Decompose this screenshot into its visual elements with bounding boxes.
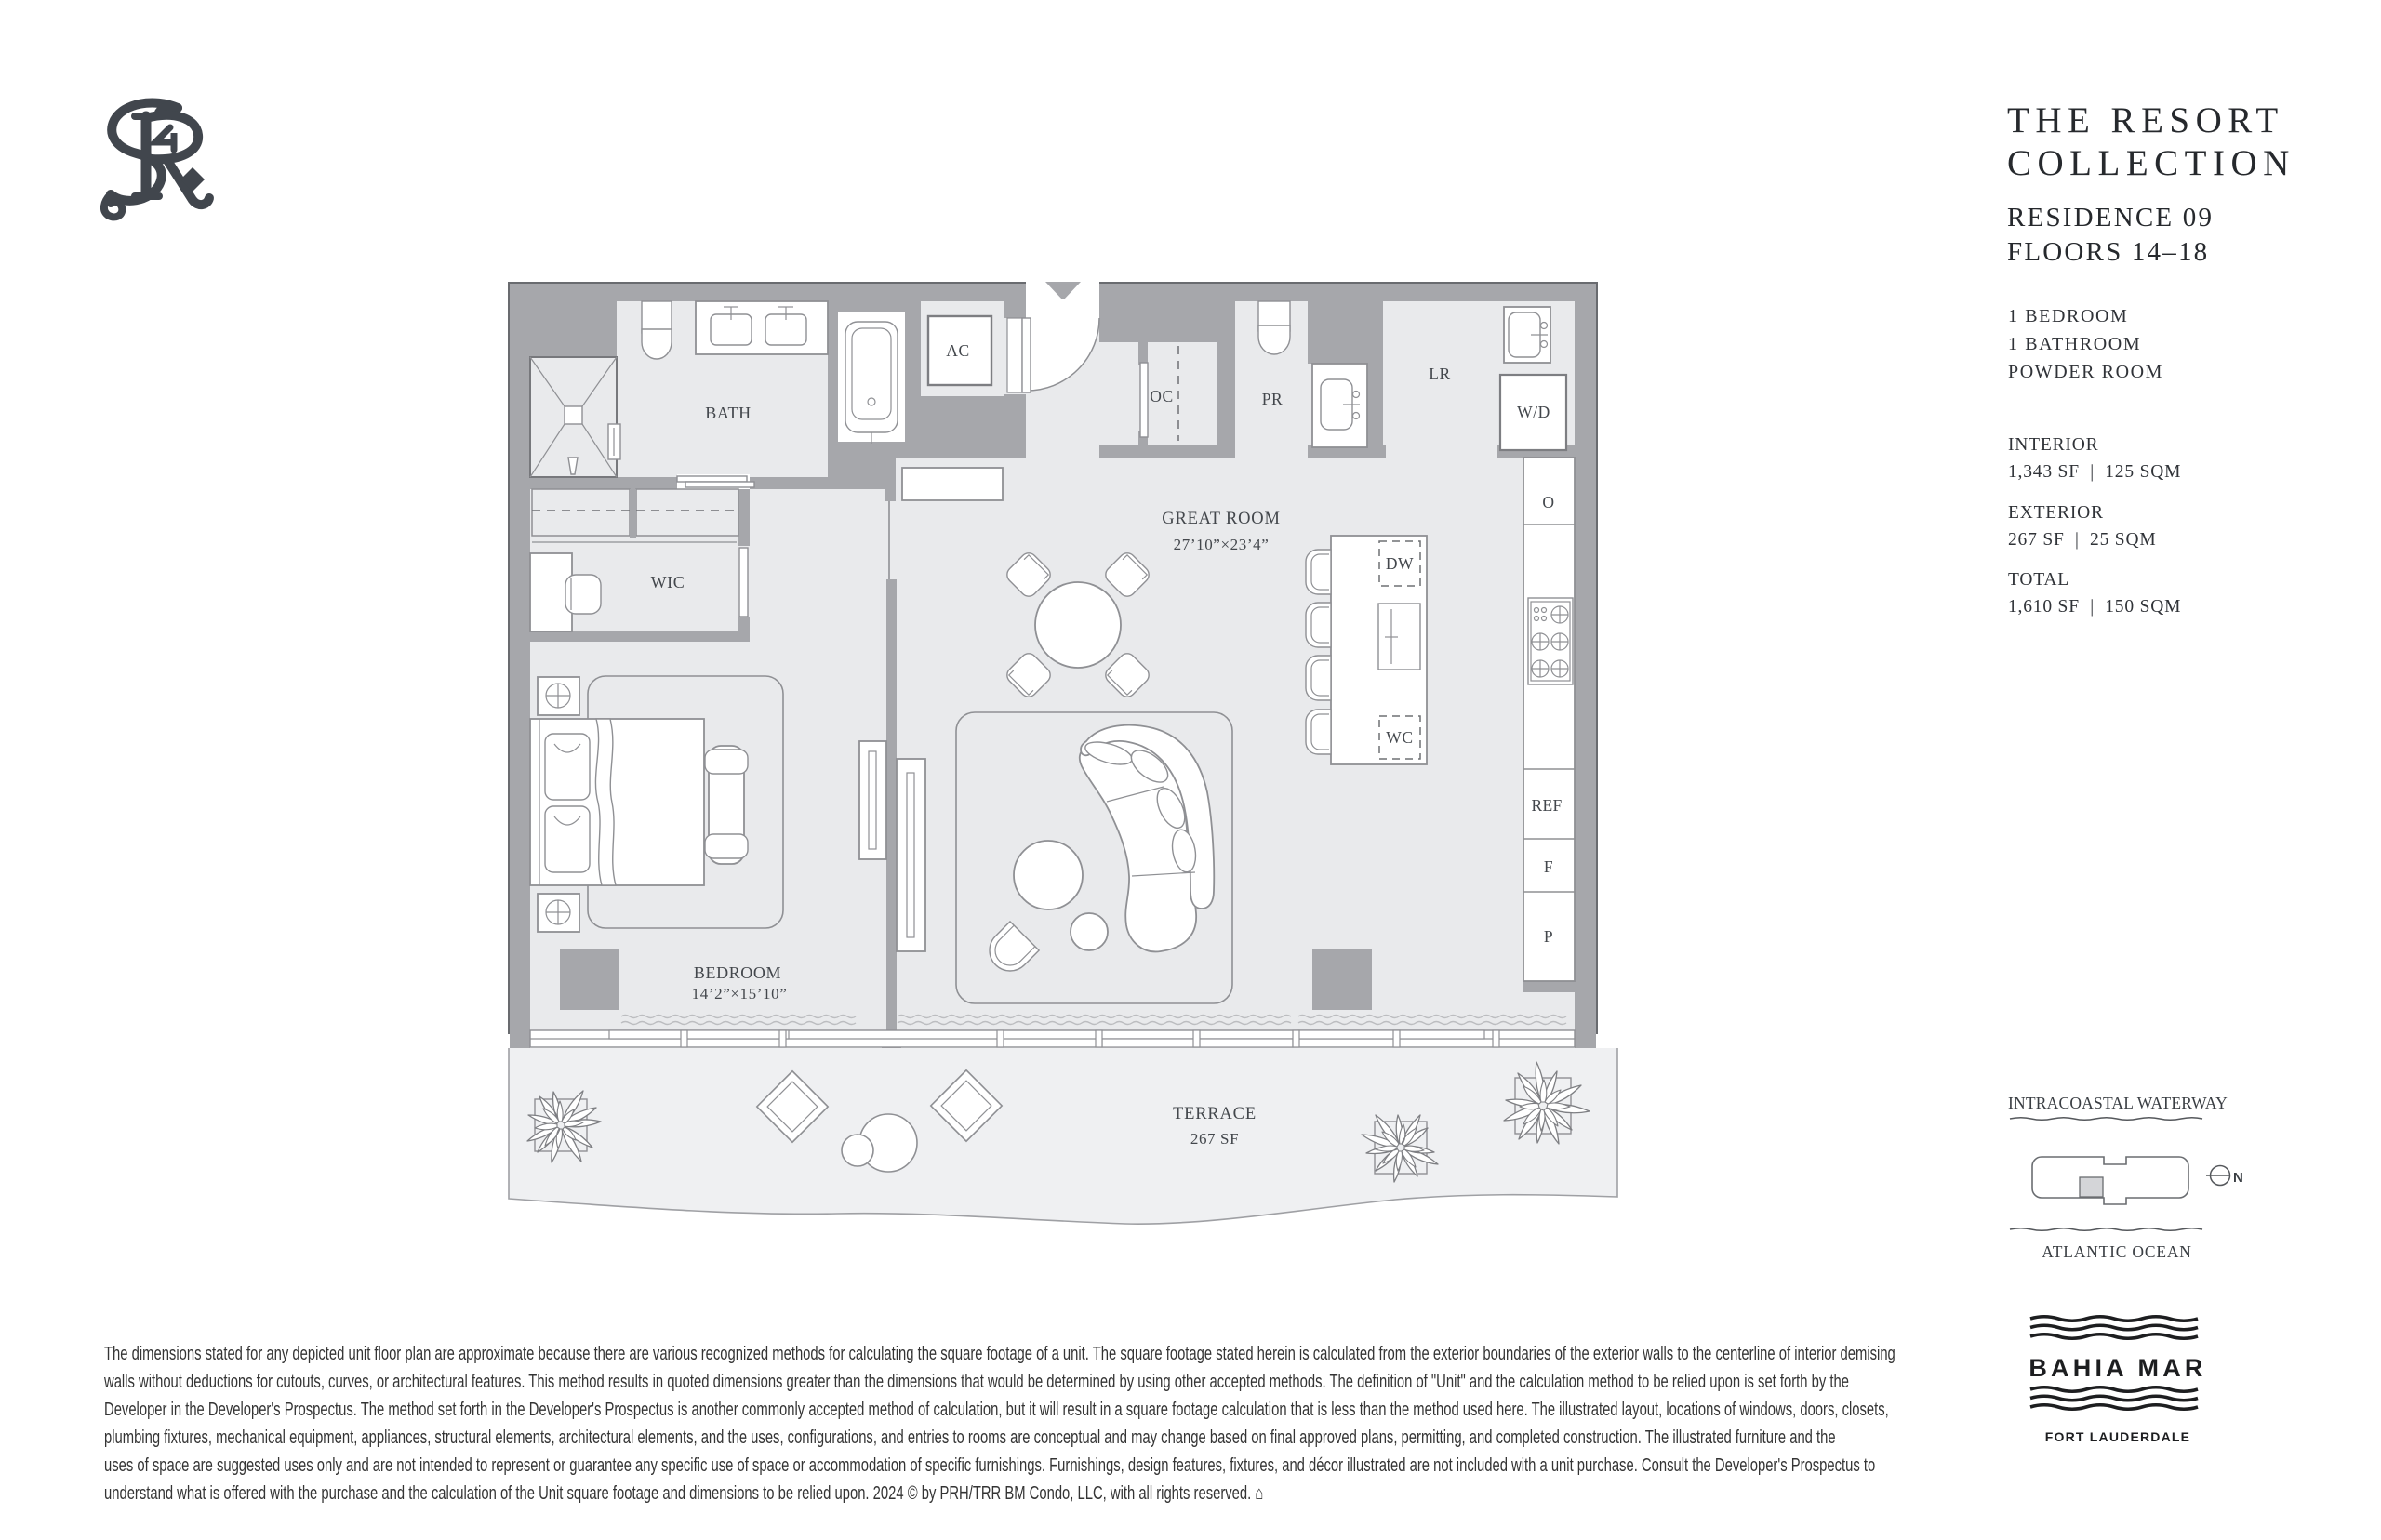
svg-text:P: P <box>1544 927 1553 946</box>
svg-text:OC: OC <box>1150 387 1174 405</box>
svg-text:27’10”×23’4”: 27’10”×23’4” <box>1174 536 1270 553</box>
svg-text:GREAT ROOM: GREAT ROOM <box>1162 510 1280 528</box>
svg-text:O: O <box>1542 493 1554 511</box>
svg-text:DW: DW <box>1386 554 1414 573</box>
svg-text:14’2”×15’10”: 14’2”×15’10” <box>692 985 788 1002</box>
svg-text:BEDROOM: BEDROOM <box>694 963 781 982</box>
svg-text:WC: WC <box>1386 728 1413 747</box>
svg-text:AC: AC <box>946 341 970 360</box>
svg-text:267 SF: 267 SF <box>1190 1130 1239 1148</box>
svg-text:WIC: WIC <box>651 573 685 591</box>
svg-text:PR: PR <box>1262 390 1284 408</box>
svg-text:REF: REF <box>1532 796 1563 815</box>
svg-text:W/D: W/D <box>1517 403 1550 421</box>
svg-text:LR: LR <box>1429 365 1451 383</box>
svg-text:TERRACE: TERRACE <box>1173 1105 1257 1123</box>
svg-text:BATH: BATH <box>705 404 751 422</box>
svg-text:F: F <box>1544 857 1553 876</box>
